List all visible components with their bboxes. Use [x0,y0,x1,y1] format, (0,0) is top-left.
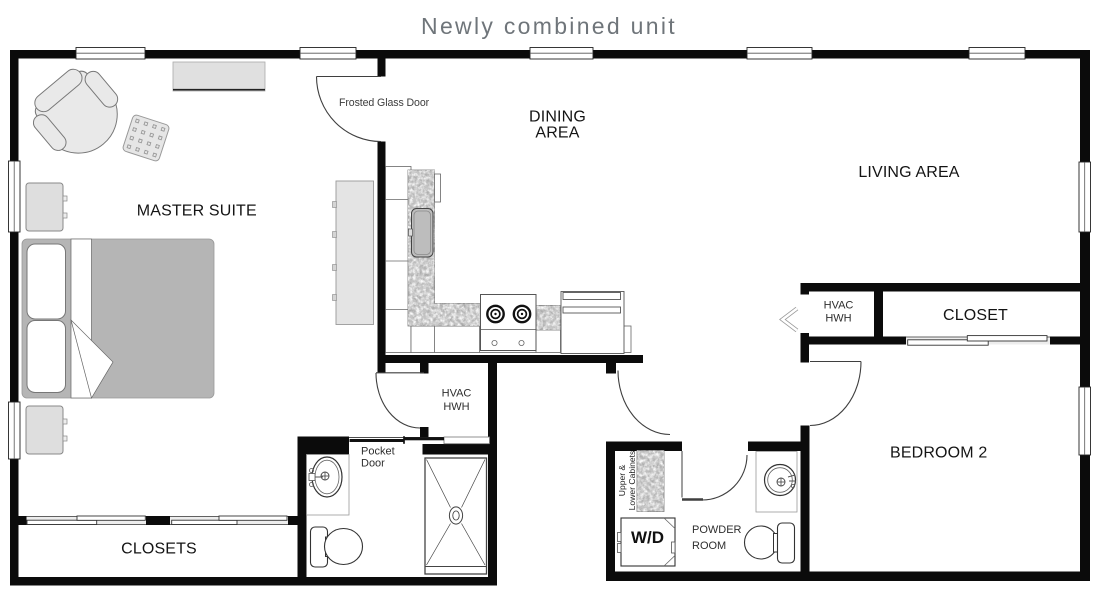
svg-text:MASTER SUITE: MASTER SUITE [137,202,257,219]
svg-text:CLOSET: CLOSET [943,307,1008,324]
svg-text:AREA: AREA [535,125,579,142]
svg-text:HVAC: HVAC [824,300,854,312]
svg-text:CLOSETS: CLOSETS [121,541,197,558]
svg-text:LIVING AREA: LIVING AREA [858,164,959,181]
svg-text:HWH: HWH [443,401,469,413]
svg-text:Upper &: Upper & [617,464,627,496]
svg-text:Frosted Glass Door: Frosted Glass Door [339,97,430,109]
svg-text:Door: Door [361,458,385,470]
svg-text:BEDROOM 2: BEDROOM 2 [890,445,987,462]
svg-text:HWH: HWH [825,313,851,325]
svg-text:HVAC: HVAC [442,388,472,400]
svg-text:POWDER: POWDER [692,524,742,536]
svg-text:Pocket: Pocket [361,446,395,458]
svg-text:DINING: DINING [529,109,586,126]
svg-text:W/D: W/D [631,528,664,547]
svg-text:Lower Cabinets: Lower Cabinets [627,451,637,511]
svg-text:ROOM: ROOM [692,540,726,552]
svg-text:Newly combined unit: Newly combined unit [421,13,677,39]
